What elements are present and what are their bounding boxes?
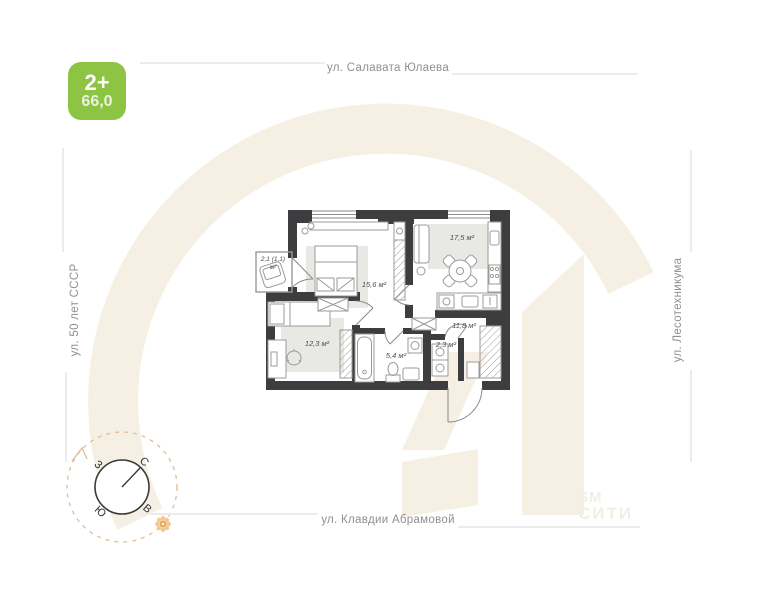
wardrobe-icon: [394, 240, 405, 300]
corner-watermark-line1: SM: [578, 490, 633, 505]
plant-icon: [302, 228, 308, 234]
kitchen-lower-counter-icon: [437, 293, 501, 310]
bedroom-window: [312, 210, 356, 219]
road-line: [62, 148, 64, 252]
road-line: [452, 73, 638, 75]
floorplan-card: 15,6 м² 17,5 м² 12,3 м² 5,4 м² 2,3 м² 11…: [0, 0, 765, 600]
room-label-wc: 2,3 м²: [435, 340, 457, 349]
hall-wardrobe-icon: [480, 326, 501, 378]
washer-icon: [439, 295, 454, 308]
sink-icon: [403, 368, 419, 380]
sofa-icon: [414, 225, 429, 263]
wardrobe-icon: [340, 330, 352, 378]
street-label-left: ул. 50 лет СССР: [69, 264, 81, 357]
monitor-icon: [271, 352, 277, 366]
room-label-bedroom2: 12,3 м²: [305, 339, 330, 348]
room-label-balcony: 2,1 (1,1): [260, 256, 285, 263]
cabinet-icon: [394, 222, 405, 240]
kitchen-counter-icon: [488, 222, 501, 292]
road-line: [690, 150, 692, 252]
room-label-bathroom: 5,4 м²: [386, 351, 407, 360]
kitchen-window: [448, 210, 490, 219]
road-line: [65, 372, 67, 462]
road-line: [140, 513, 318, 515]
compass-arrow-icon: [72, 448, 87, 461]
stove-icon: [489, 265, 500, 284]
sink-icon: [462, 296, 478, 307]
corner-watermark: SM СИТИ: [578, 490, 633, 522]
double-bed-icon: [315, 246, 357, 296]
corner-watermark-line2: СИТИ: [578, 505, 633, 522]
room-label-kitchen: 17,5 м²: [450, 233, 475, 242]
street-label-top: ул. Салавата Юлаева: [327, 62, 449, 74]
crossed-cabinet-icon: [318, 298, 348, 311]
background-logo-watermark: [113, 129, 631, 519]
room-label-bedroom: 15,6 м²: [362, 280, 387, 289]
room-label-balcony-unit: м²: [270, 264, 277, 271]
shelf-icon: [310, 222, 388, 230]
plant-icon: [308, 223, 314, 229]
sun-icon: [155, 516, 171, 532]
bathtub-icon: [355, 334, 374, 382]
apartment-badge: 2+ 66,0: [68, 62, 126, 120]
shoe-cabinet-icon: [467, 362, 479, 378]
road-line: [690, 370, 692, 462]
crossed-shelf-icon: [412, 318, 436, 330]
street-label-right: ул. Лесотехникума: [672, 258, 684, 363]
street-label-bottom: ул. Клавдии Абрамовой: [321, 514, 455, 526]
room-label-hallway: 11,8 м²: [452, 321, 476, 330]
toilet-icon: [386, 363, 400, 383]
floor-plan: 15,6 м² 17,5 м² 12,3 м² 5,4 м² 2,3 м² 11…: [256, 210, 510, 422]
desk-icon: [268, 340, 286, 378]
road-line: [458, 526, 640, 528]
road-line: [140, 62, 325, 64]
sink-icon: [490, 231, 499, 245]
washer-icon: [408, 338, 422, 353]
badge-rooms-count: 2+: [84, 71, 109, 94]
badge-area-value: 66,0: [81, 94, 112, 111]
side-table-icon: [417, 267, 425, 275]
bathroom-door: [385, 331, 403, 344]
